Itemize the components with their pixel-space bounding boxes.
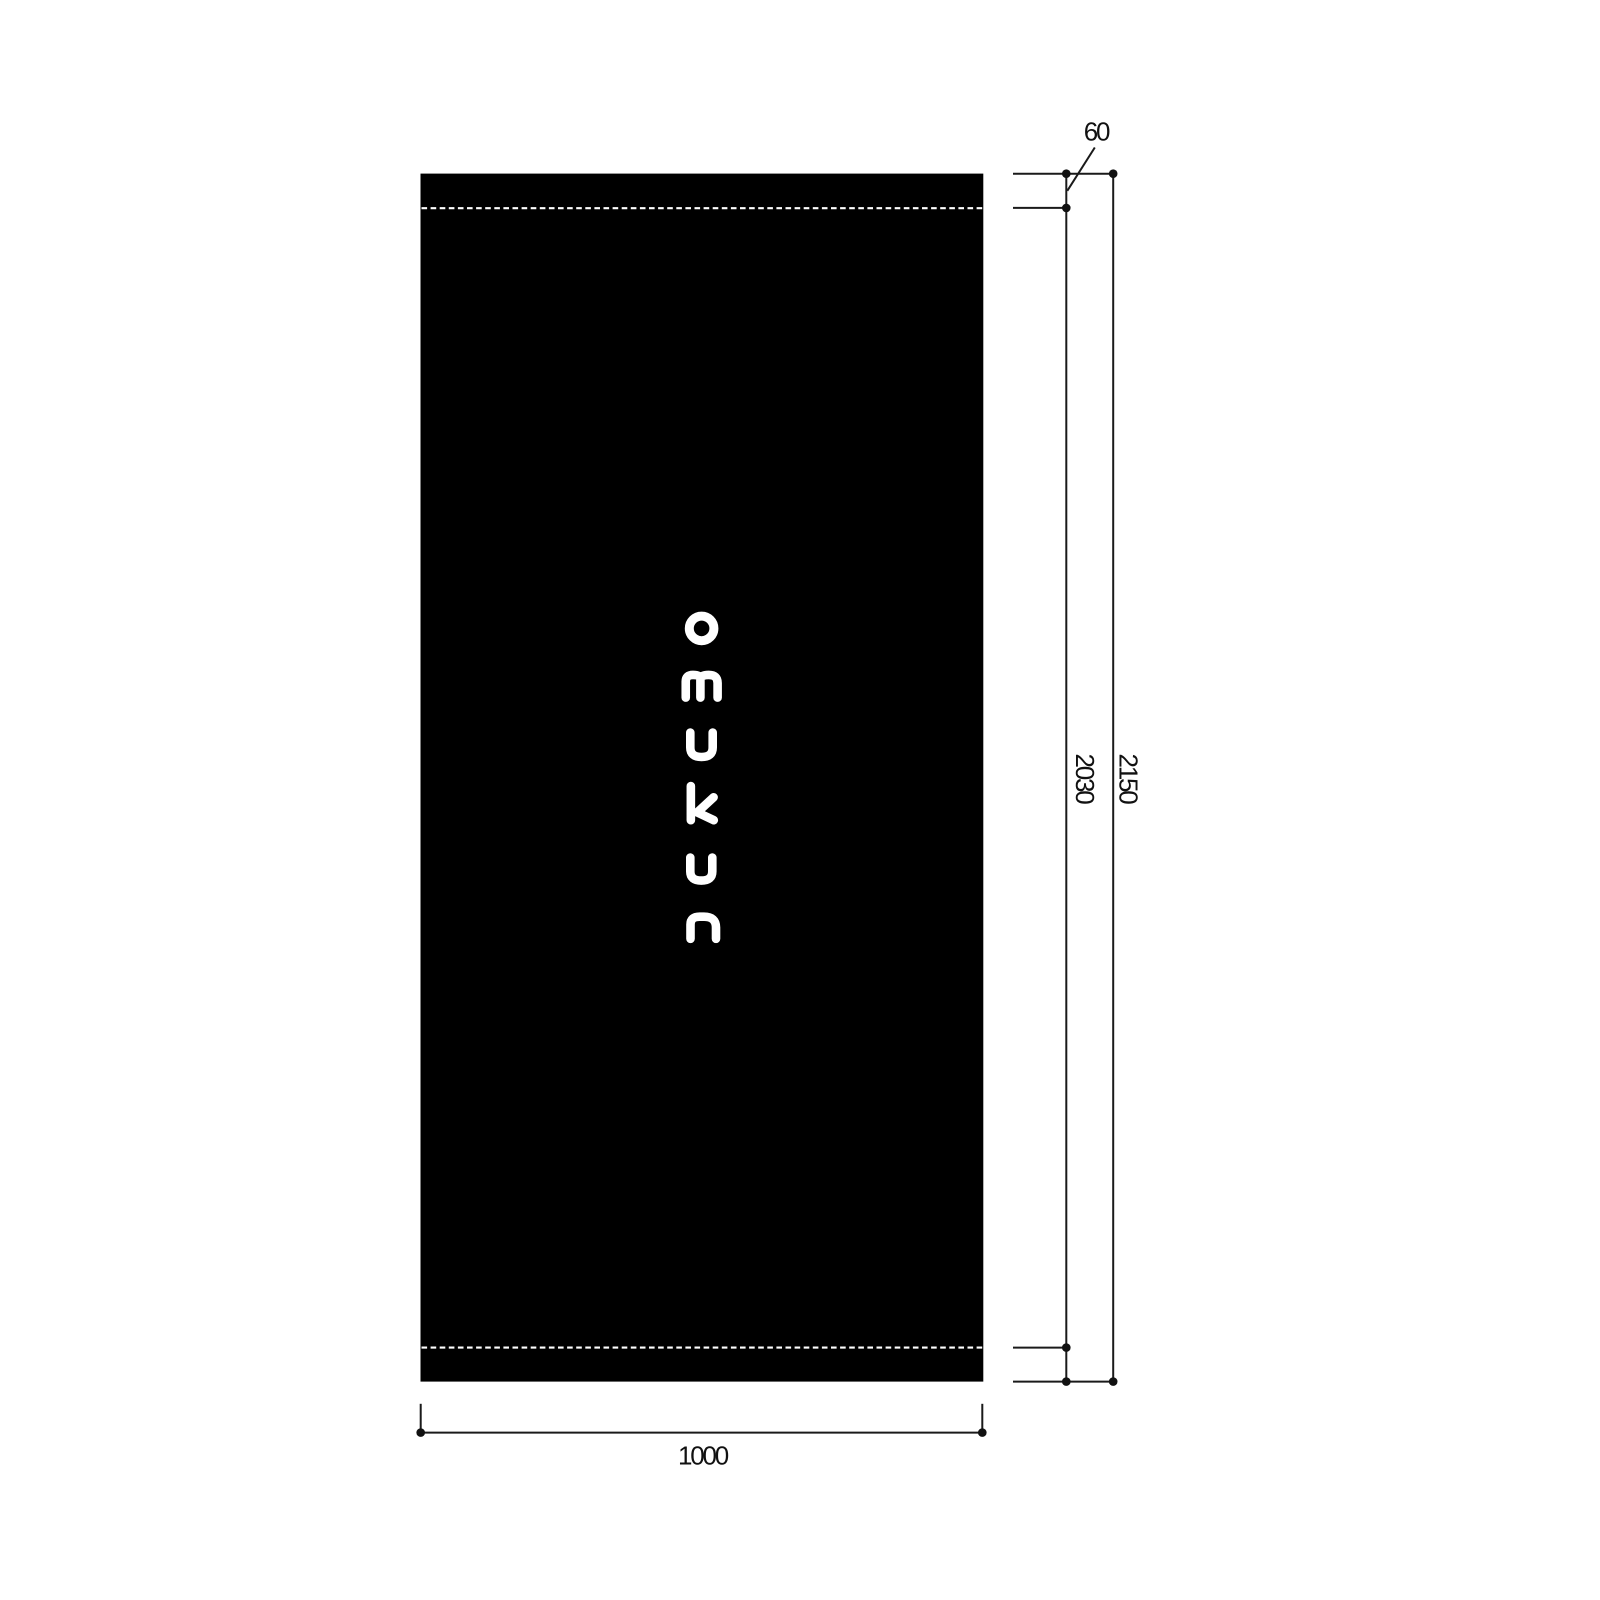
svg-text:2030: 2030 [1070,753,1100,804]
svg-text:2150: 2150 [1114,753,1144,804]
svg-text:1000: 1000 [678,1441,729,1471]
svg-text:60: 60 [1084,117,1110,147]
